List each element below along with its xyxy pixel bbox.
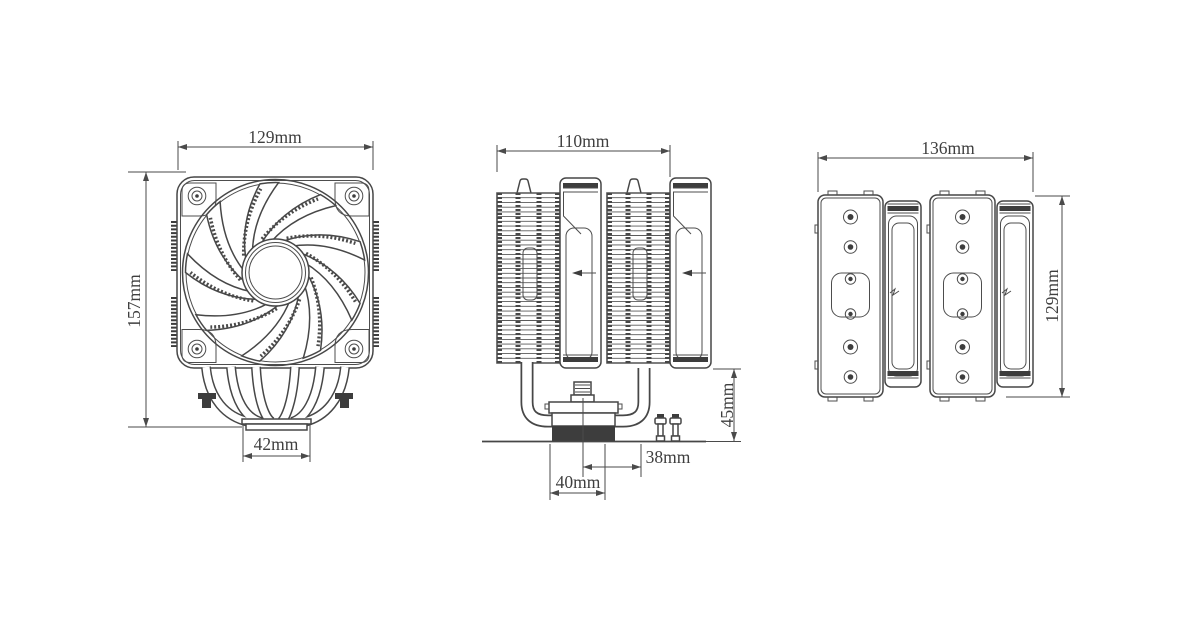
heatpipes-front: [206, 367, 345, 422]
tower-1: [497, 178, 711, 368]
front-base-width-label: 42mm: [254, 434, 299, 454]
rear-height-label: 129mm: [1042, 269, 1062, 323]
standoffs: [655, 414, 681, 441]
side-base-height-label: 45mm: [717, 382, 737, 427]
rear-view: 136mm 129mm: [815, 138, 1070, 401]
dim-side-base-depth: 40mm: [550, 444, 605, 500]
dim-side-depth: 110mm: [497, 131, 670, 177]
side-base-depth-label: 40mm: [556, 472, 601, 492]
diagram-page: 129mm 157mm 42mm: [0, 0, 1200, 630]
front-view: 129mm 157mm 42mm: [124, 127, 376, 462]
side-depth-label: 110mm: [557, 131, 610, 151]
front-width-label: 129mm: [248, 127, 302, 147]
front-height-label: 157mm: [124, 274, 144, 328]
cooler-dimension-drawing: 129mm 157mm 42mm: [0, 0, 1200, 630]
rear-width-label: 136mm: [921, 138, 975, 158]
fan-hub: [242, 239, 309, 306]
dim-rear-width: 136mm: [818, 138, 1033, 192]
dim-front-width: 129mm: [178, 127, 373, 170]
side-view: 110mm 45mm 38mm 40mm: [482, 131, 741, 500]
dim-side-base-height: 45mm: [706, 369, 741, 442]
cooler-base-front: [242, 419, 311, 430]
side-offset-label: 38mm: [646, 447, 691, 467]
